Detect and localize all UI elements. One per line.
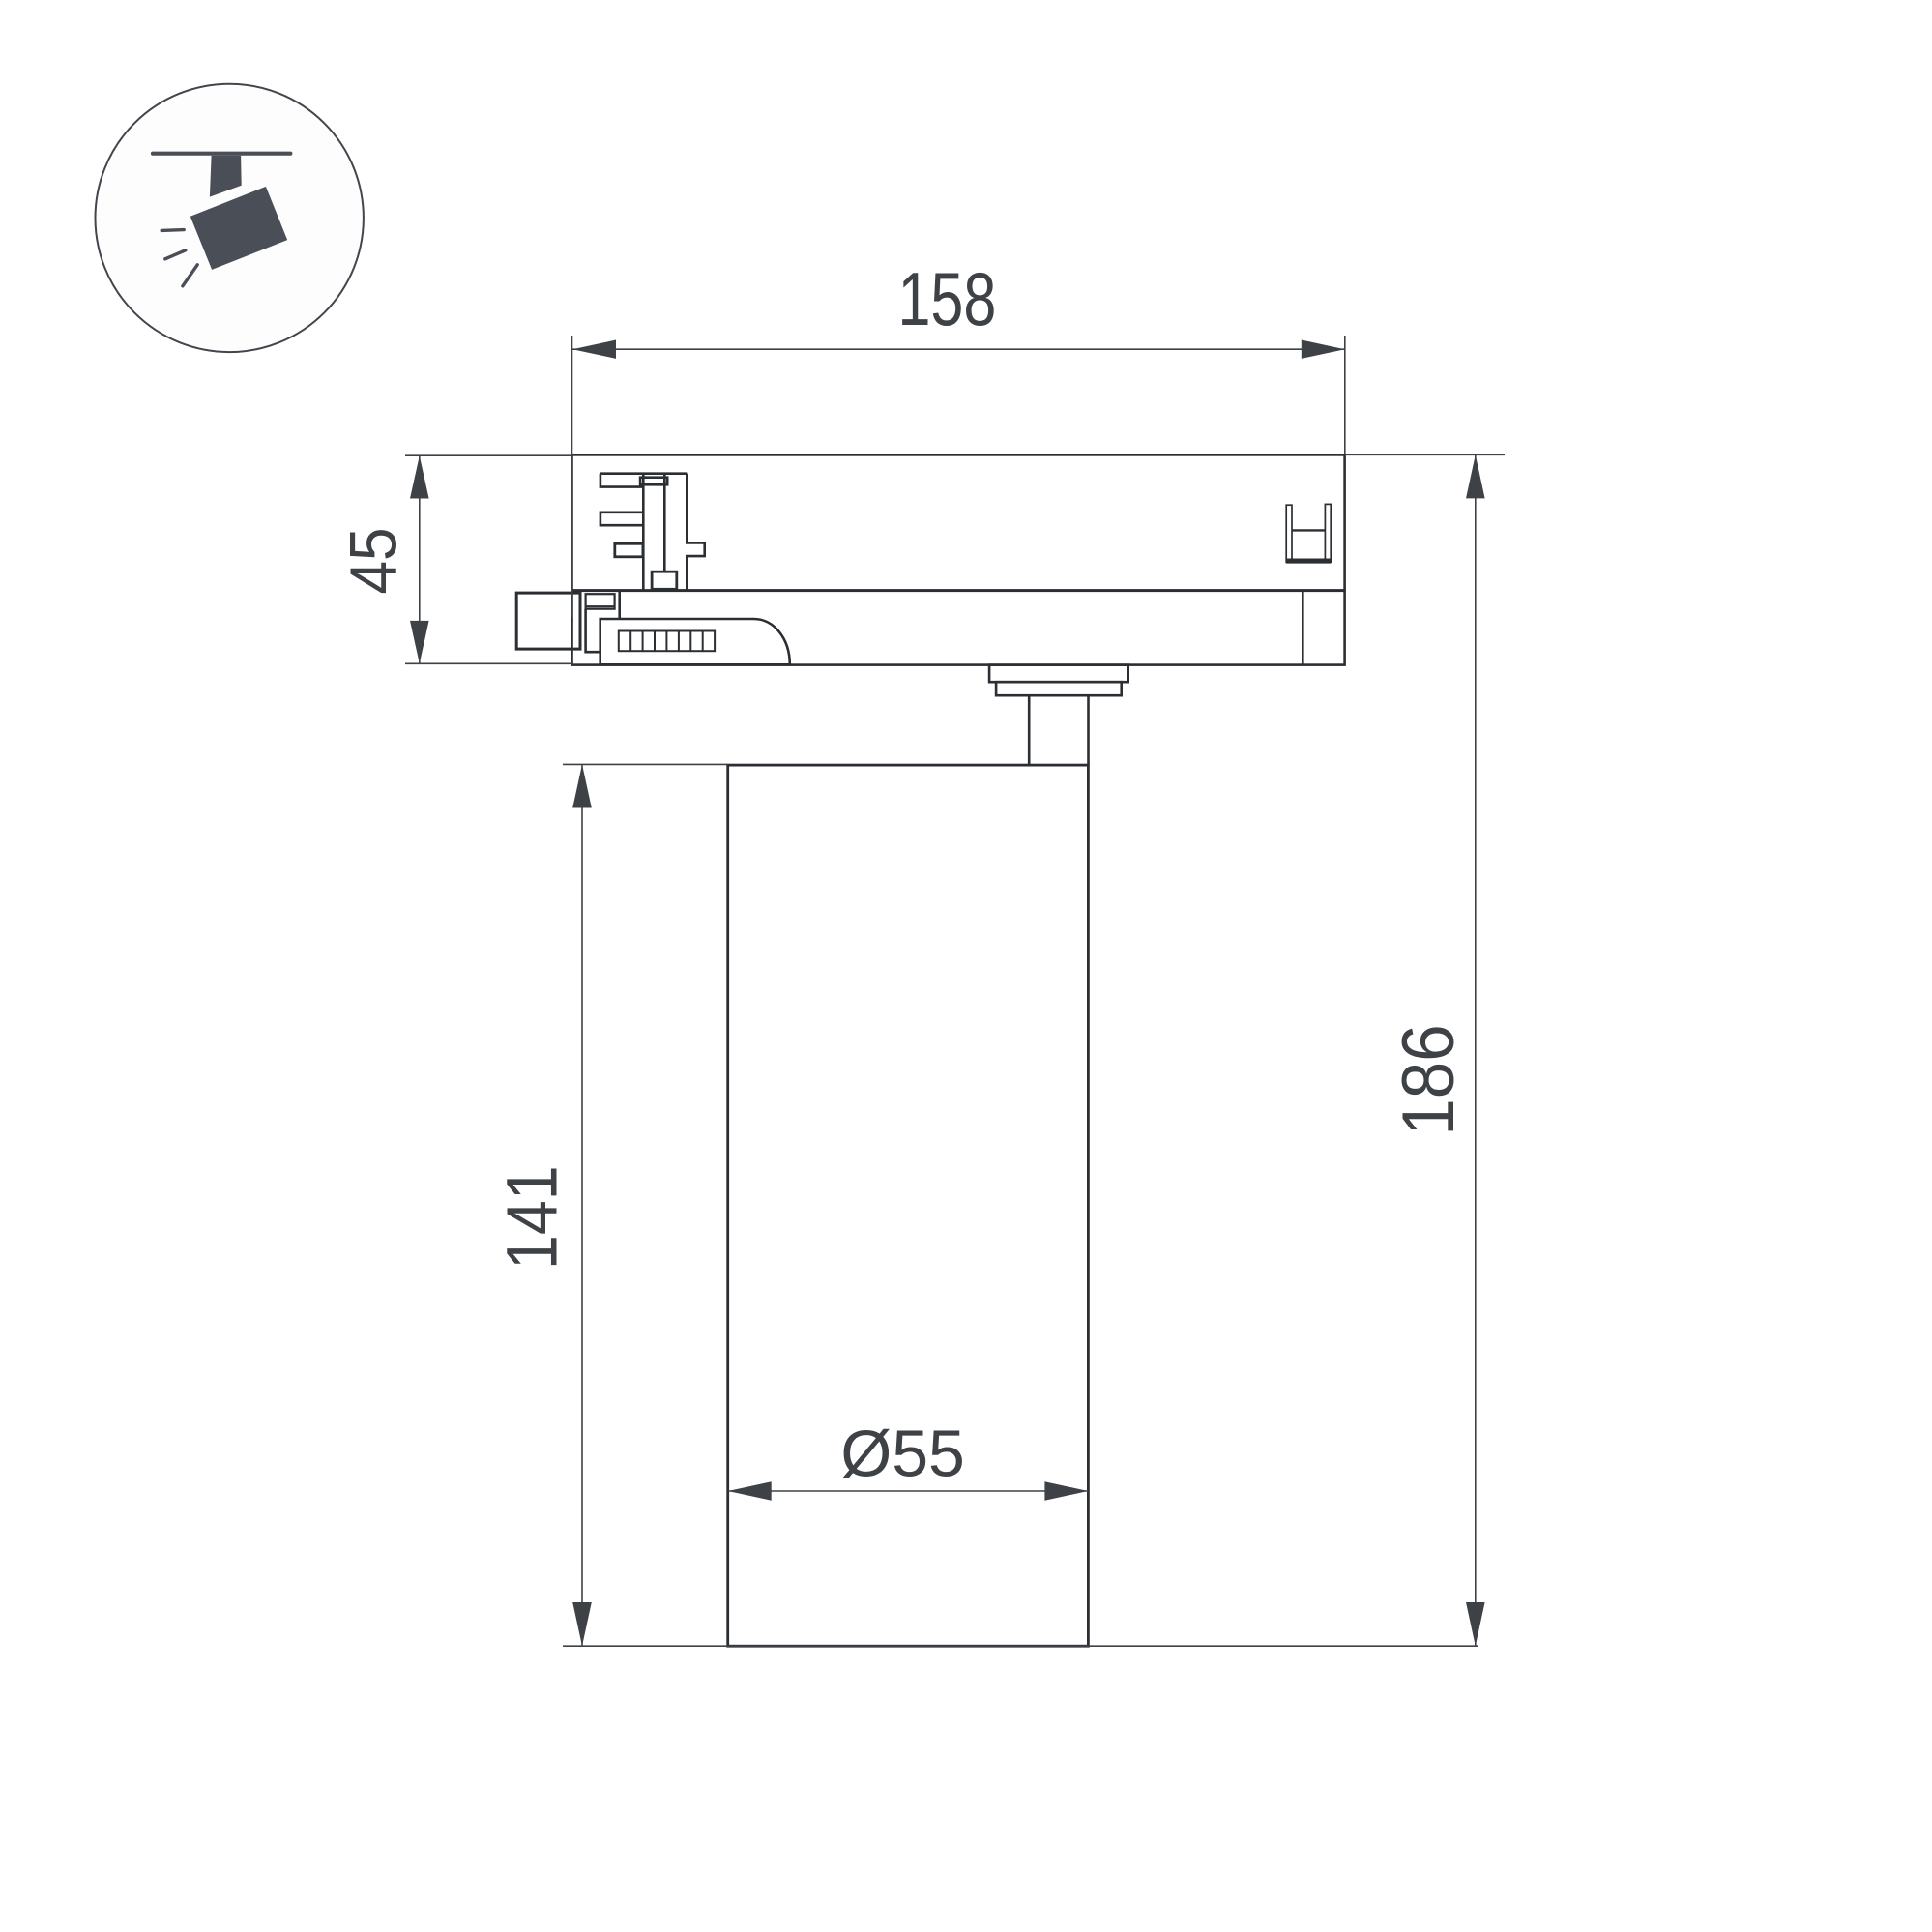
svg-text:141: 141	[491, 1165, 571, 1270]
svg-text:45: 45	[337, 527, 411, 594]
svg-text:158: 158	[897, 257, 996, 341]
svg-text:186: 186	[1388, 1024, 1470, 1135]
svg-text:Ø55: Ø55	[840, 1418, 965, 1491]
